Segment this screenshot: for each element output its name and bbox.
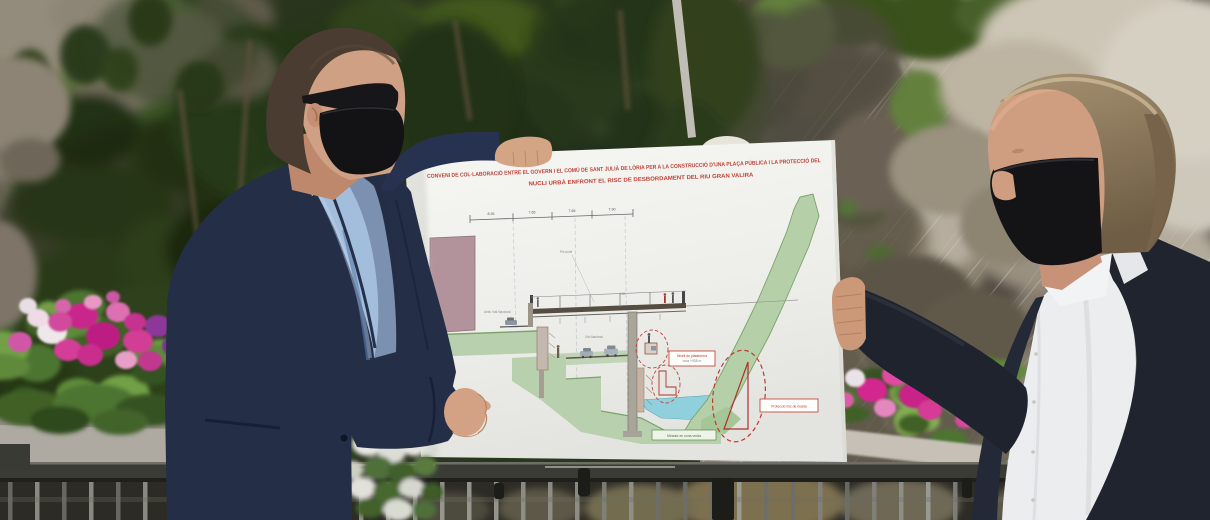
svg-text:7.90: 7.90 <box>609 208 616 212</box>
svg-text:7.65: 7.65 <box>529 211 536 215</box>
svg-text:Mirador en zona verda: Mirador en zona verda <box>667 434 701 438</box>
svg-text:Pis túnel: Pis túnel <box>560 250 573 254</box>
svg-text:7.65: 7.65 <box>569 209 576 213</box>
svg-text:4.55: 4.55 <box>619 292 625 296</box>
svg-text:Nivell de plataforma: Nivell de plataforma <box>677 354 707 358</box>
svg-text:Protecció risc de riuada: Protecció risc de riuada <box>771 405 807 409</box>
svg-text:Antic Vial Nacional: Antic Vial Nacional <box>484 310 511 314</box>
svg-text:Via Nacional: Via Nacional <box>585 335 603 339</box>
svg-text:cota +908 m: cota +908 m <box>683 359 702 363</box>
svg-text:8.35: 8.35 <box>488 212 495 216</box>
svg-text:459: 459 <box>594 307 602 312</box>
